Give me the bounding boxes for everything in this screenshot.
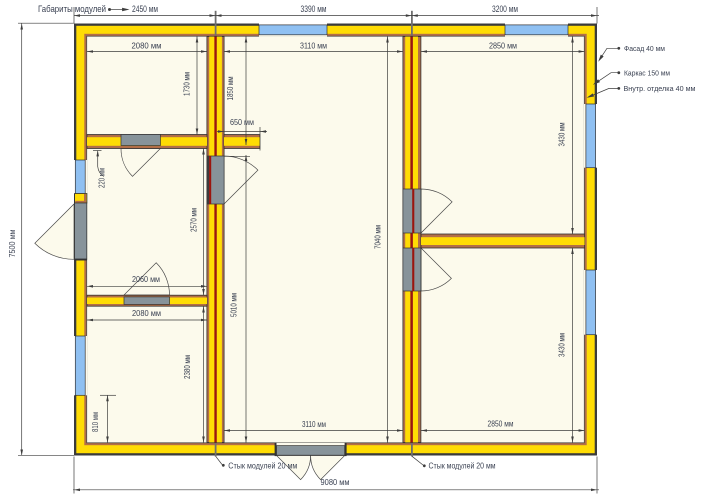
svg-text:2380 мм: 2380 мм: [183, 355, 192, 379]
svg-text:3110 мм: 3110 мм: [302, 420, 326, 429]
svg-text:3430 мм: 3430 мм: [558, 333, 567, 357]
svg-text:220 мм: 220 мм: [98, 168, 107, 188]
svg-text:5010 мм: 5010 мм: [230, 293, 239, 317]
svg-text:Каркас 150 мм: Каркас 150 мм: [624, 70, 670, 77]
svg-text:Фасад 40 мм: Фасад 40 мм: [624, 46, 665, 53]
svg-text:Стык модулей 20 мм: Стык модулей 20 мм: [228, 461, 297, 470]
svg-text:2080 мм: 2080 мм: [132, 41, 162, 50]
svg-text:2080 мм: 2080 мм: [132, 309, 161, 318]
svg-text:9080 мм: 9080 мм: [321, 478, 350, 487]
svg-text:3390 мм: 3390 мм: [301, 4, 327, 15]
svg-text:2450 мм: 2450 мм: [132, 4, 158, 15]
svg-text:1730 мм: 1730 мм: [183, 72, 192, 96]
svg-text:7500 мм: 7500 мм: [8, 230, 17, 258]
svg-text:2570 мм: 2570 мм: [190, 208, 199, 232]
svg-text:Габариты модулей: Габариты модулей: [38, 4, 106, 15]
svg-text:2850 мм: 2850 мм: [489, 41, 517, 50]
svg-text:1850 мм: 1850 мм: [226, 77, 235, 101]
svg-text:3430 мм: 3430 мм: [558, 123, 567, 147]
svg-text:Внутр. отделка 40 мм: Внутр. отделка 40 мм: [624, 86, 696, 93]
svg-text:3200 мм: 3200 мм: [492, 4, 518, 15]
svg-text:650 мм: 650 мм: [230, 118, 254, 127]
svg-text:810 мм: 810 мм: [91, 412, 100, 432]
svg-text:2850 мм: 2850 мм: [488, 419, 514, 428]
svg-text:Стык модулей 20 мм: Стык модулей 20 мм: [429, 462, 496, 471]
svg-text:3110 мм: 3110 мм: [300, 41, 327, 50]
svg-text:7040 мм: 7040 мм: [374, 225, 383, 249]
svg-text:2060 мм: 2060 мм: [132, 275, 160, 284]
